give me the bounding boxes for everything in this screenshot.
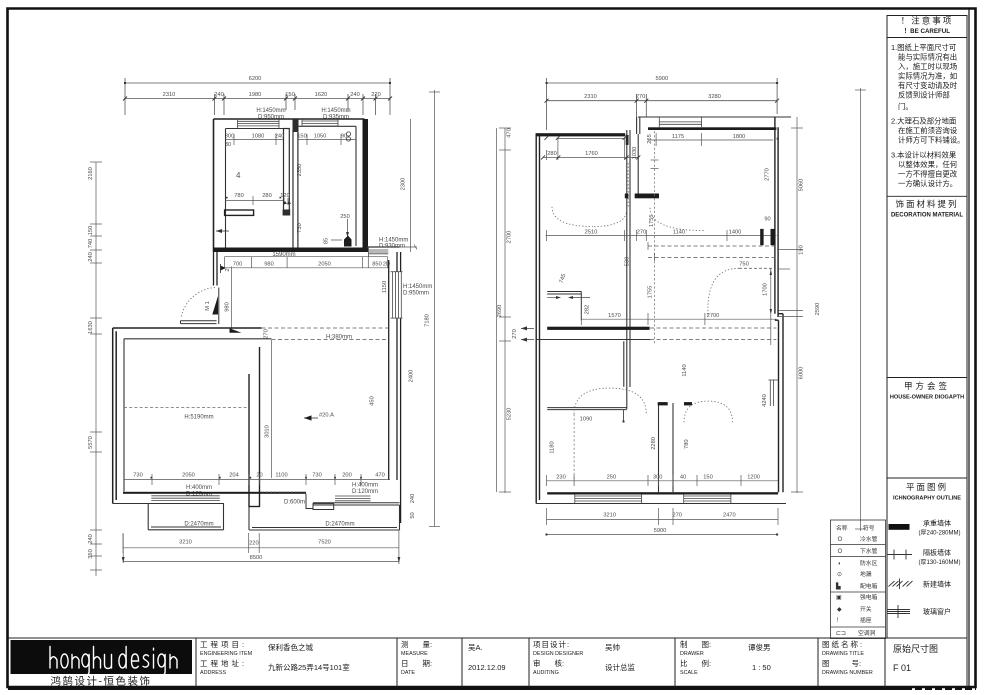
svg-text:240: 240 [88,252,94,262]
svg-text:D:950mm: D:950mm [403,291,429,297]
svg-text:D:930mm: D:930mm [379,244,405,250]
svg-text:H:380mm: H:380mm [326,335,352,341]
svg-text:270: 270 [637,230,647,236]
svg-text:！注意事项: ！注意事项 [901,16,954,26]
svg-text:700: 700 [233,261,243,267]
svg-text:冷水管: 冷水管 [860,535,878,543]
svg-text:！BE CAREFUL: ！BE CAREFUL [904,28,950,35]
svg-text:1570: 1570 [608,313,621,319]
svg-text:7520: 7520 [318,540,331,546]
svg-text:1100: 1100 [275,473,287,479]
svg-text:270: 270 [636,94,646,100]
svg-text:吴帅: 吴帅 [605,642,620,652]
svg-text:1400: 1400 [729,230,742,236]
svg-text:1755: 1755 [648,286,654,299]
svg-text:有尺寸变动请及时: 有尺寸变动请及时 [898,81,958,90]
svg-text:2012.12.09: 2012.12.09 [468,663,506,672]
svg-text:D:600m: D:600m [284,500,305,506]
svg-text:#20.A: #20.A [319,413,334,419]
svg-text:2050: 2050 [318,261,331,267]
svg-text:H:400mm: H:400mm [352,483,378,489]
svg-text:2280: 2280 [651,437,657,450]
svg-text:地漏: 地漏 [860,570,872,578]
svg-text:图纸名称:: 图纸名称: [822,639,864,649]
svg-text:240: 240 [275,134,285,140]
svg-text:计师方可下料铺设。: 计师方可下料铺设。 [898,136,965,145]
svg-text:150: 150 [297,134,307,140]
svg-text:◆: ◆ [837,607,842,613]
svg-text:530: 530 [625,257,631,267]
svg-text:7180: 7180 [425,314,431,327]
svg-text:ADDRESS: ADDRESS [200,670,226,676]
svg-text:⊙: ⊙ [837,572,842,578]
svg-text:一方不得擅自更改: 一方不得擅自更改 [898,170,958,179]
svg-text:！: ！ [836,617,842,624]
svg-text:配电箱: 配电箱 [860,582,878,590]
svg-text:HOUSE-OWNER DIOGAPTH: HOUSE-OWNER DIOGAPTH [890,395,964,401]
svg-text:1755: 1755 [649,214,655,227]
svg-text:DECORATION MATERIAL: DECORATION MATERIAL [891,213,963,219]
svg-text:780: 780 [234,193,244,199]
svg-text:6200: 6200 [249,76,262,82]
svg-text:220: 220 [249,541,259,547]
svg-text:740: 740 [88,239,94,249]
svg-text:H:1450mm: H:1450mm [403,284,432,290]
svg-text:原始尺寸图: 原始尺寸图 [893,643,938,654]
svg-text:强电箱: 强电箱 [860,593,878,601]
svg-text:入，施工时以现场: 入，施工时以现场 [898,62,957,71]
svg-text:470: 470 [375,473,385,479]
svg-text:282: 282 [585,305,591,315]
svg-text:DATE: DATE [401,670,415,676]
svg-text:5230: 5230 [507,408,513,421]
svg-text:一方确认设计方。: 一方确认设计方。 [898,179,957,188]
svg-text:190: 190 [799,245,805,255]
svg-text:90: 90 [764,217,770,223]
svg-text:D:2470mm: D:2470mm [184,522,213,528]
svg-text:1030: 1030 [632,147,638,160]
svg-text:2510: 2510 [585,230,598,236]
svg-text:1080: 1080 [252,134,265,140]
svg-text:隔板墙体: 隔板墙体 [923,548,951,557]
svg-text:M 1: M 1 [205,301,211,310]
svg-text:承重墙体: 承重墙体 [923,519,951,528]
svg-text:H:1450mm: H:1450mm [379,237,408,243]
svg-text:(厚130-160MM): (厚130-160MM) [919,559,961,566]
svg-text:1200: 1200 [747,474,760,480]
svg-text:3010: 3010 [265,425,271,438]
svg-text:240: 240 [410,494,416,504]
svg-text:H:1450mm: H:1450mm [256,108,285,114]
svg-text:2050: 2050 [182,473,195,479]
svg-text:1800: 1800 [733,134,746,140]
svg-text:(厚240-280MM): (厚240-280MM) [919,530,961,537]
svg-text:4: 4 [236,171,241,180]
svg-text:能与实际情况有出: 能与实际情况有出 [898,53,957,62]
svg-text:Ｏ: Ｏ [837,536,843,543]
svg-text:DRAWING TITLE: DRAWING TITLE [822,651,864,657]
svg-text:2770: 2770 [765,168,771,181]
svg-text:设计总监: 设计总监 [605,662,635,672]
svg-text:工程项目:: 工程项目: [200,640,247,649]
svg-text:280: 280 [547,151,557,157]
svg-text:730: 730 [133,473,143,479]
svg-text:饰面材料提列: 饰面材料提列 [895,199,958,209]
svg-text:150: 150 [285,92,295,98]
svg-text:1140: 1140 [682,364,688,376]
svg-text:玻璃窗户: 玻璃窗户 [923,607,951,616]
svg-text:850: 850 [372,261,382,267]
svg-text:AUDITING: AUDITING [533,670,559,676]
svg-text:85: 85 [324,238,330,244]
svg-text:230: 230 [556,474,566,480]
svg-text:204: 204 [229,473,239,479]
svg-text:2310: 2310 [163,92,176,98]
svg-text:3210: 3210 [603,513,616,519]
svg-text:1.图纸上平面尺寸可: 1.图纸上平面尺寸可 [891,43,956,52]
svg-text:项目设计:: 项目设计: [533,639,570,649]
svg-text:D:120mm: D:120mm [352,489,378,495]
svg-text:2470: 2470 [723,513,736,519]
svg-text:九新公路25弄14号101室: 九新公路25弄14号101室 [268,662,350,672]
svg-text:2700: 2700 [707,313,720,319]
svg-text:200: 200 [342,473,352,479]
svg-text:3210: 3210 [179,540,192,546]
svg-text:5900: 5900 [654,528,667,534]
svg-text:1090: 1090 [580,416,593,422]
svg-text:2690: 2690 [497,305,503,318]
svg-text:MEASURE: MEASURE [401,651,428,657]
svg-text:D:2470mm: D:2470mm [325,522,354,528]
svg-text:1590mm: 1590mm [272,252,295,258]
svg-text:工程地址:: 工程地址: [200,658,247,668]
svg-text:实际情况为准，如: 实际情况为准，如 [898,72,957,81]
svg-text:在施工前须咨询设: 在施工前须咨询设 [898,126,958,135]
svg-text:265: 265 [647,134,653,144]
svg-text:1150: 1150 [382,281,388,293]
svg-text:1140: 1140 [673,230,685,236]
svg-text:5060: 5060 [799,179,805,192]
svg-text:▣: ▣ [836,595,842,601]
svg-text:780: 780 [684,439,690,449]
svg-text:270: 270 [264,329,270,339]
svg-text:250: 250 [340,214,350,220]
svg-text:平面图例: 平面图例 [906,482,948,492]
svg-text:防水区: 防水区 [860,559,878,567]
svg-text:1175: 1175 [672,134,684,140]
svg-text:5900: 5900 [655,76,668,82]
svg-text:DRAWER: DRAWER [680,651,704,657]
svg-text:符号: 符号 [863,524,875,532]
svg-text:2.大理石及部分地面: 2.大理石及部分地面 [891,117,956,126]
svg-text:吴A.: 吴A. [468,643,483,652]
svg-text:1760: 1760 [585,151,598,157]
svg-text:H:400mm: H:400mm [186,485,212,491]
svg-text:1630: 1630 [88,321,94,334]
svg-text:750: 750 [739,262,749,268]
svg-text:鸿鹄设计-恒色装饰: 鸿鹄设计-恒色装饰 [51,675,152,688]
svg-text:1700: 1700 [763,283,769,296]
svg-text:730: 730 [312,473,322,479]
svg-text:反馈到设计师部: 反馈到设计师部 [898,91,950,100]
svg-text:3280: 3280 [708,94,721,100]
svg-text:5570: 5570 [88,436,94,449]
svg-text:下水管: 下水管 [860,547,878,555]
svg-text:220: 220 [371,92,381,98]
svg-text:2400: 2400 [409,370,415,383]
svg-text:150: 150 [703,474,713,480]
svg-text:2160: 2160 [88,167,94,180]
svg-text:270: 270 [512,329,518,339]
svg-text:150: 150 [88,226,94,236]
svg-text:450: 450 [370,396,376,406]
svg-text:300: 300 [653,474,663,480]
svg-text:名称: 名称 [836,524,848,532]
svg-text:H:5190mm: H:5190mm [184,415,213,421]
svg-text:DRAWING NUMBER: DRAWING NUMBER [822,670,873,676]
svg-text:300: 300 [225,134,235,140]
svg-text:DESIGN DESIGNER: DESIGN DESIGNER [533,651,583,657]
svg-text:2: 2 [225,268,231,271]
svg-text:240: 240 [350,92,360,98]
svg-text:270: 270 [672,513,682,519]
svg-text:谭俊男: 谭俊男 [748,642,771,652]
svg-text:门。: 门。 [898,102,913,111]
svg-text:20: 20 [256,473,262,479]
svg-text:1050: 1050 [314,134,327,140]
svg-text:2350: 2350 [297,164,303,177]
svg-text:▙: ▙ [835,582,841,590]
svg-text:新建墙体: 新建墙体 [923,580,951,589]
svg-text:以整体效果，任何: 以整体效果，任何 [898,160,958,169]
svg-text:开关: 开关 [860,605,872,613]
svg-text:保利香色之城: 保利香色之城 [268,642,313,652]
svg-text:2700: 2700 [507,231,513,244]
svg-text:240: 240 [88,534,94,544]
svg-text:4240: 4240 [762,394,768,407]
svg-text:1180: 1180 [550,441,556,453]
svg-text:ENGINEERING ITEM: ENGINEERING ITEM [200,651,253,657]
svg-text:2590: 2590 [815,303,821,316]
svg-text:⊏⊐: ⊏⊐ [836,631,846,637]
svg-text:ICHNOGRAPHY OUTLINE: ICHNOGRAPHY OUTLINE [893,496,961,502]
svg-text:8500: 8500 [250,555,263,561]
svg-text:280: 280 [262,193,272,199]
svg-text:Ｏ: Ｏ [837,548,843,555]
svg-text:SCALE: SCALE [680,670,698,676]
svg-text:30: 30 [225,142,231,148]
svg-text:470: 470 [507,128,513,138]
svg-text:◑: ◑ [837,561,841,567]
svg-text:1980: 1980 [249,92,262,98]
svg-text:980: 980 [225,302,231,312]
svg-text:730: 730 [297,223,303,233]
svg-text:2300: 2300 [401,178,407,191]
svg-text:甲方会签: 甲方会签 [904,381,950,391]
svg-text:240: 240 [214,92,224,98]
svg-text:2310: 2310 [584,94,597,100]
svg-text:插座: 插座 [860,616,872,624]
svg-text:250: 250 [607,474,617,480]
svg-text:1620: 1620 [315,92,328,98]
svg-text:350: 350 [88,549,94,559]
svg-text:980: 980 [264,261,274,267]
svg-text:50: 50 [410,512,416,518]
svg-text:6000: 6000 [799,367,805,380]
svg-text:3.本设计以材料效果: 3.本设计以材料效果 [891,151,957,160]
svg-text:40: 40 [680,474,686,480]
svg-text:F 01: F 01 [893,663,911,673]
svg-text:H:1450mm: H:1450mm [321,108,350,114]
svg-text:空调洞: 空调洞 [858,629,876,637]
svg-text:1 : 50: 1 : 50 [752,663,771,672]
